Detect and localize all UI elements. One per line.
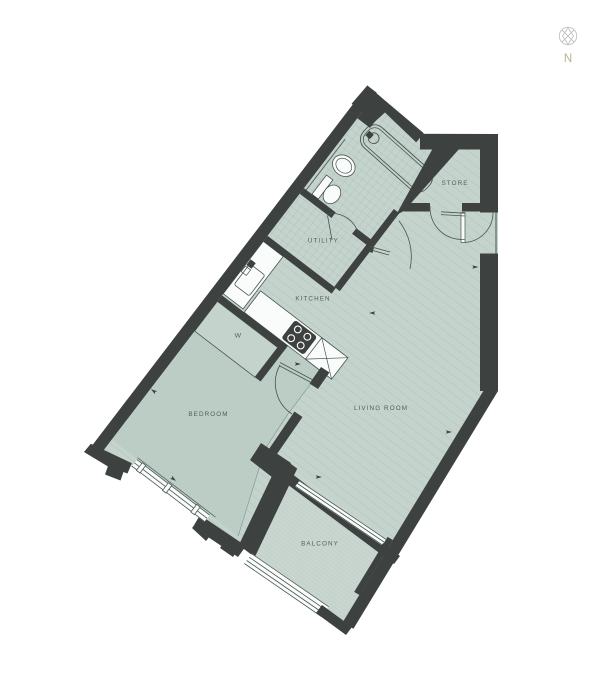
svg-text:N: N bbox=[564, 53, 572, 65]
svg-text:LIVING ROOM: LIVING ROOM bbox=[354, 405, 408, 412]
svg-text:BALCONY: BALCONY bbox=[301, 541, 339, 548]
svg-text:STORE: STORE bbox=[441, 180, 468, 187]
svg-text:KITCHEN: KITCHEN bbox=[295, 296, 330, 303]
svg-text:BEDROOM: BEDROOM bbox=[188, 411, 228, 418]
svg-text:UTILITY: UTILITY bbox=[308, 238, 339, 245]
svg-text:W: W bbox=[235, 333, 242, 340]
